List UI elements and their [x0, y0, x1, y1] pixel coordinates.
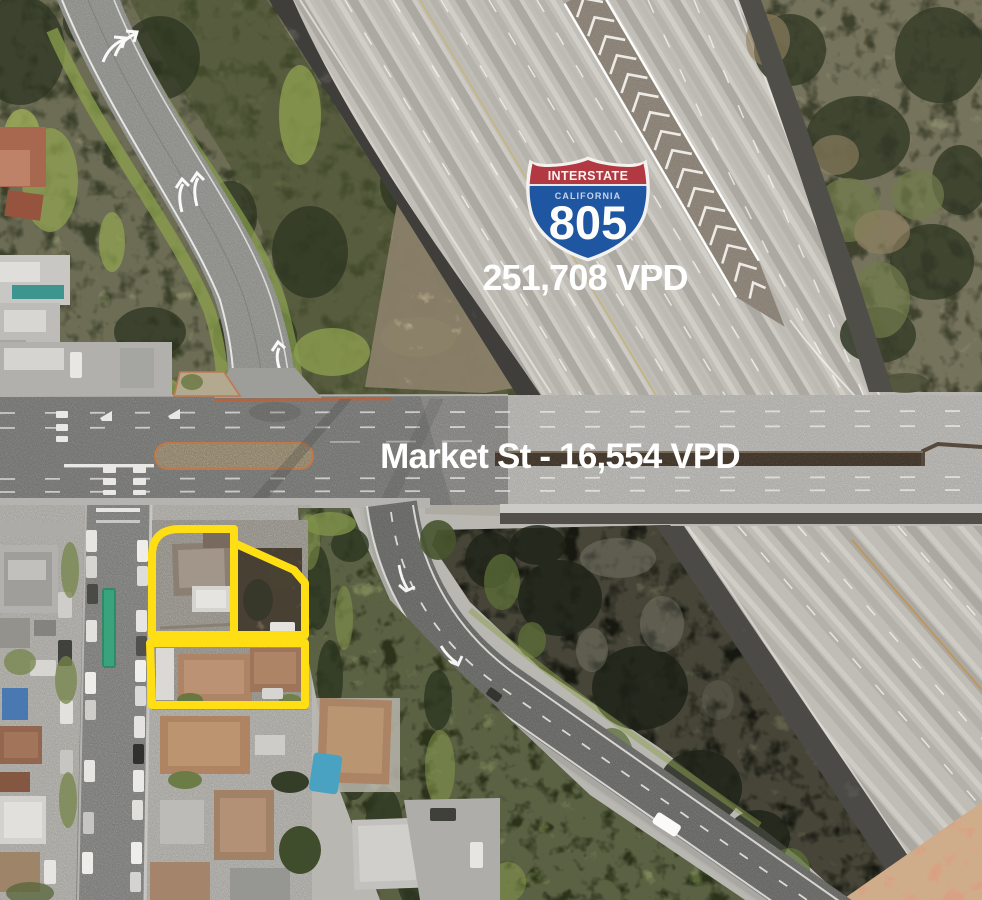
svg-text:INTERSTATE: INTERSTATE	[548, 169, 629, 183]
svg-text:805: 805	[549, 196, 627, 249]
svg-text:251,708 VPD: 251,708 VPD	[482, 257, 687, 298]
svg-text:Market St - 16,554 VPD: Market St - 16,554 VPD	[380, 437, 740, 476]
